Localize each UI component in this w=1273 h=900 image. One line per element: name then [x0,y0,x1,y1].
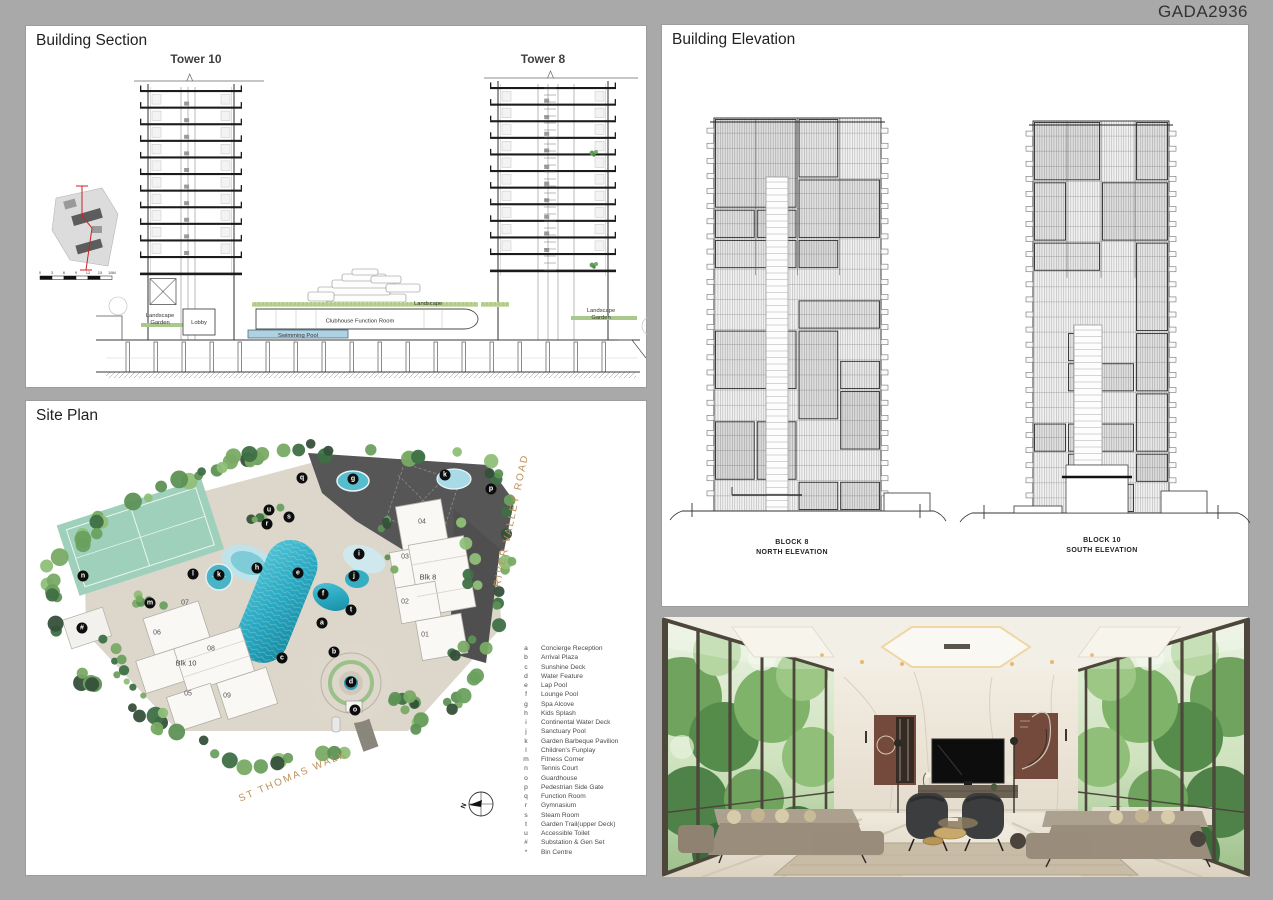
tower-8-section [484,71,638,340]
tree [140,693,146,699]
tree [159,601,168,610]
site-marker-f: f [318,589,329,600]
legend-label: Garden Trail(upper Deck) [534,821,615,828]
legend-row: kGarden Barbeque Pavilion [518,737,618,746]
legend-row: *Bin Centre [518,848,618,857]
tree [40,560,53,573]
tree [124,493,142,511]
svg-text:BLOCK 10: BLOCK 10 [1083,537,1121,544]
tree [237,759,253,775]
legend-key: g [518,701,534,708]
block-10-ground [960,465,1250,523]
tree [117,655,127,665]
legend-label: Concierge Reception [534,645,603,652]
tree [98,635,107,644]
tree [382,518,389,525]
site-plan-legend: aConcierge ReceptionbArrival PlazacSunsh… [518,644,618,857]
tree [48,616,64,632]
svg-text:SOUTH ELEVATION: SOUTH ELEVATION [1066,547,1137,554]
legend-row: tGarden Trail(upper Deck) [518,820,618,829]
legend-row: #Substation & Gen Set [518,838,618,847]
legend-label: Pedestrian Side Gate [534,784,604,791]
legend-label: Fitness Corner [534,756,584,763]
tree [111,643,122,654]
tree [254,759,268,773]
tree [446,704,457,715]
site-plan-title: Site Plan [36,407,98,425]
legend-label: Children's Funplay [534,747,595,754]
tree [210,749,219,758]
legend-key: o [518,775,534,782]
tree [456,688,471,703]
landscape-label: Landscape [414,301,442,307]
tree [485,468,495,478]
feature-wall [834,669,1078,813]
basement-structure [106,342,638,372]
tree [400,705,409,714]
clubhouse-interior-photo [662,617,1250,877]
tree [469,553,481,565]
legend-label: Steam Room [534,812,579,819]
legend-label: Lap Pool [534,682,567,689]
tree [270,756,284,770]
unit-label: 06 [153,630,161,637]
unit-label: 01 [421,632,429,639]
tv-console [918,739,1018,798]
legend-row: eLap Pool [518,681,618,690]
clubhouse-label: Clubhouse Function Room [326,319,395,325]
legend-label: Guardhouse [534,775,577,782]
legend-key: q [518,793,534,800]
tree [292,444,305,457]
north-compass: N [460,792,493,816]
legend-label: Function Room [534,793,586,800]
legend-key: e [518,682,534,689]
site-marker-m: m [145,598,156,609]
legend-label: Gymnasium [534,802,576,809]
tree [158,708,168,718]
unit-label: 02 [401,599,409,606]
tree [241,446,257,462]
legend-label: Spa Alcove [534,701,574,708]
tree [90,515,104,529]
unit-label: 09 [223,693,231,700]
tree [390,565,398,573]
site-marker-d: d [346,677,357,688]
tree [403,690,416,703]
tree [283,753,293,763]
tree [484,454,498,468]
legend-row: dWater Feature [518,672,618,681]
unit-label: 07 [181,600,189,607]
arrival-plaza [311,643,391,749]
tree [46,588,59,601]
lobby-label: Lobby [191,320,207,326]
legend-key: # [518,839,534,846]
watermark-code: GADA2936 [1158,2,1248,22]
site-marker-o: o [350,705,361,716]
unit-label: Blk 8 [420,573,437,582]
north-label: N [460,803,468,810]
block-10-elevation-label: BLOCK 10 SOUTH ELEVATION [1066,537,1137,554]
legend-key: j [518,728,534,735]
legend-label: Sanctuary Pool [534,728,586,735]
legend-key: * [518,849,534,856]
tree [252,517,258,523]
unit-label: 08 [207,646,215,653]
tree [452,447,462,457]
tree [222,752,238,768]
tree [124,678,130,684]
site-plan-panel: Site Plan [25,400,647,876]
tree [51,548,69,566]
block-8-elevation [707,118,888,511]
legend-row: qFunction Room [518,792,618,801]
legend-key: p [518,784,534,791]
scale-number: 0 [39,270,42,275]
site-marker-j: j [349,571,360,582]
site-marker-a: a [317,618,328,629]
svg-text:Garden: Garden [150,320,169,326]
legend-label: Kids Splash [534,710,576,717]
legend-key: k [518,738,534,745]
legend-row: sSteam Room [518,811,618,820]
site-marker-s: s [284,512,295,523]
building-section-panel: Building Section Tower 10 Tower 8 [25,25,647,388]
legend-key: r [518,802,534,809]
legend-row: iContinental Water Deck [518,718,618,727]
building-elevation-panel: Building Elevation [661,24,1249,607]
unit-label: 03 [401,554,409,561]
tree [450,650,461,661]
svg-text:Garden: Garden [591,315,610,321]
tree [128,703,137,712]
legend-key: i [518,719,534,726]
svg-text:Landscape: Landscape [146,313,174,319]
building-section-title: Building Section [36,32,147,50]
tree [468,635,476,643]
legend-row: aConcierge Reception [518,644,618,653]
tree [456,517,466,527]
tree [113,671,120,678]
scale-bar: 0369121518M [39,270,116,280]
legend-key: s [518,812,534,819]
legend-row: mFitness Corner [518,755,618,764]
tower-10-section [134,74,264,340]
tree [480,642,493,655]
legend-label: Continental Water Deck [534,719,610,726]
legend-key: a [518,645,534,652]
unit-label: 05 [184,691,192,698]
legend-row: rGymnasium [518,801,618,810]
legend-row: fLounge Pool [518,690,618,699]
tree [277,444,291,458]
scale-number: 6 [63,270,66,275]
tree [323,446,333,456]
legend-label: Water Feature [534,673,583,680]
scale-number: 15 [98,270,103,275]
tree [197,467,206,476]
tree [388,695,399,706]
legend-row: oGuardhouse [518,774,618,783]
legend-label: Arrival Plaza [534,654,578,661]
legend-label: Sunshine Deck [534,664,585,671]
site-marker-k: k [214,570,225,581]
legend-row: gSpa Alcove [518,700,618,709]
site-marker-k: k [440,470,451,481]
interior-render [662,617,1250,877]
tree [463,569,474,580]
tree [151,722,164,735]
scale-number: 18M [108,270,116,275]
building-section-drawing: Tower 10 Tower 8 0369121518M [26,26,648,389]
tree [473,580,483,590]
legend-key: h [518,710,534,717]
site-marker-b: b [329,647,340,658]
scale-number: 3 [51,270,54,275]
tower-8-label: Tower 8 [521,52,566,66]
tree [467,672,481,686]
tree [133,710,146,723]
tree [199,736,209,746]
legend-key: c [518,664,534,671]
legend-row: pPedestrian Side Gate [518,783,618,792]
legend-key: m [518,756,534,763]
site-marker-t: t [346,605,357,616]
legend-key: u [518,830,534,837]
tree [494,469,503,478]
artwork-left [874,715,916,785]
site-marker-e: e [293,568,304,579]
legend-key: t [518,821,534,828]
site-marker-hash: # [77,623,88,634]
legend-key: b [518,654,534,661]
tree [217,462,228,473]
site-marker-h: h [252,563,263,574]
scale-number: 12 [86,270,91,275]
unit-label: Blk 10 [176,659,197,668]
site-marker-u: u [264,505,275,516]
tower-10-label: Tower 10 [170,52,221,66]
legend-label: Tennis Court [534,765,578,772]
tree [144,493,153,502]
tree [460,537,473,550]
legend-key: f [518,691,534,698]
tree [276,504,284,512]
legend-label: Substation & Gen Set [534,839,604,846]
tree [129,684,136,691]
scale-number: 9 [75,270,78,275]
building-elevation-title: Building Elevation [672,31,795,49]
block-8-elevation-label: BLOCK 8 NORTH ELEVATION [756,539,828,556]
tree [493,601,501,609]
artwork-right [1014,712,1058,779]
tree [168,724,185,741]
tree [136,595,143,602]
key-plan: 0369121518M [39,186,118,280]
tree [155,481,167,493]
svg-text:NORTH ELEVATION: NORTH ELEVATION [756,549,828,556]
tree [411,450,425,464]
legend-label: Lounge Pool [534,691,578,698]
legend-label: Bin Centre [534,849,572,856]
legend-row: cSunshine Deck [518,663,618,672]
tree [85,677,99,691]
tree [76,537,91,552]
legend-row: jSanctuary Pool [518,727,618,736]
site-marker-q: q [297,473,308,484]
site-marker-i: i [354,549,365,560]
block-10-elevation [1026,121,1176,513]
tree [170,471,188,489]
site-marker-n: n [78,571,89,582]
svg-text:Landscape: Landscape [587,308,615,314]
legend-row: bArrival Plaza [518,653,618,662]
legend-row: nTennis Court [518,764,618,773]
site-marker-g: g [348,474,359,485]
tree [91,528,102,539]
site-marker-r: r [262,519,273,530]
legend-key: n [518,765,534,772]
legend-key: l [518,747,534,754]
tree [458,641,470,653]
site-marker-c: c [277,653,288,664]
svg-text:BLOCK 8: BLOCK 8 [775,539,809,546]
site-marker-p: p [486,484,497,495]
tree [385,554,391,560]
legend-row: hKids Splash [518,709,618,718]
swimming-pool-label: Swimming Pool [278,333,318,339]
site-marker-l: l [188,569,199,580]
unit-label: 04 [418,519,426,526]
tree [492,618,506,632]
tree [404,452,412,460]
legend-label: Accessible Toilet [534,830,590,837]
tree [306,439,316,449]
legend-row: uAccessible Toilet [518,829,618,838]
building-elevation-drawing: BLOCK 8 NORTH ELEVATION BLOCK 10 SOUTH E… [662,25,1250,608]
legend-label: Garden Barbeque Pavilion [534,738,618,745]
legend-key: d [518,673,534,680]
tree [410,724,421,735]
legend-row: lChildren's Funplay [518,746,618,755]
tree [365,444,376,455]
